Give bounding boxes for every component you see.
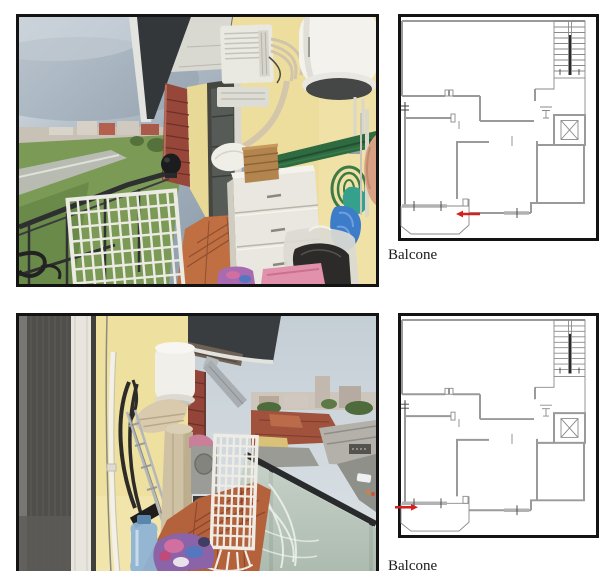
floor-plan-2-drawing xyxy=(401,316,596,535)
elevator xyxy=(554,115,585,145)
staircase xyxy=(554,21,585,78)
floor-plan-1-drawing xyxy=(401,17,596,238)
document-page: Balcone xyxy=(0,0,614,571)
floor-plan-1 xyxy=(398,14,599,241)
figure-caption: Balcone xyxy=(388,557,437,571)
plan-geometry xyxy=(401,21,585,234)
floor-plan-2 xyxy=(398,313,599,538)
balcony-photo-1 xyxy=(16,14,379,287)
figure-caption: Balcone xyxy=(388,246,437,264)
viewpoint-arrow xyxy=(456,211,480,218)
balcony-photo-1-image xyxy=(19,17,376,284)
window-screen xyxy=(19,316,96,571)
balcony-photo-2 xyxy=(16,313,379,571)
water-heater-cylinder xyxy=(155,342,195,408)
laundry-pile xyxy=(153,533,214,571)
balcony-photo-2-image xyxy=(19,316,376,571)
door-symbol xyxy=(540,107,552,118)
